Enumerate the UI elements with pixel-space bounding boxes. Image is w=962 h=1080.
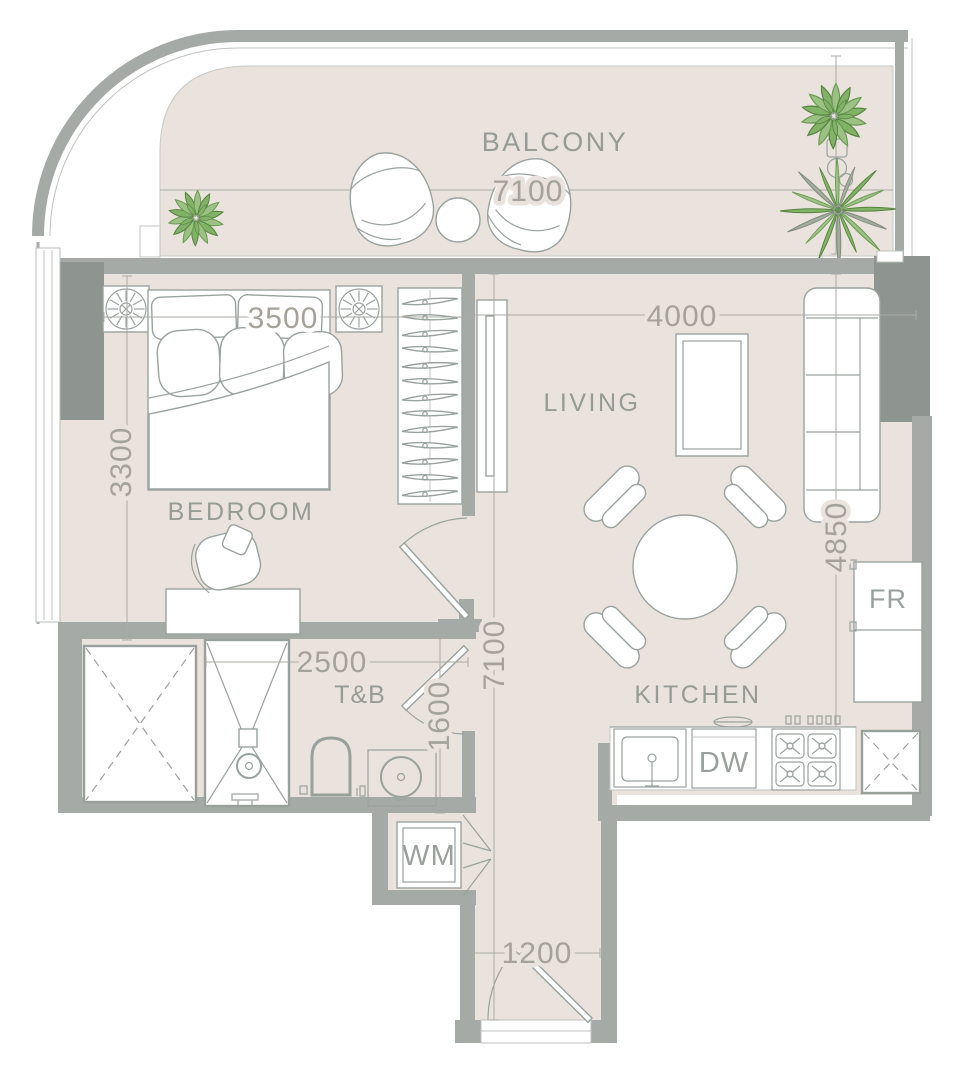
washing-machine-label: WM [402,840,456,872]
floor-plan-page: 7100 3500 3300 4000 4850 7100 2500 1600 … [0,0,962,1080]
dim-tb-width: 2500 [297,646,368,679]
shaft-box [84,646,196,802]
dim-entry-width: 1200 [502,937,573,970]
coffee-table [676,334,748,456]
tb-label: T&B [334,681,386,709]
wardrobe [398,288,462,504]
kitchen-shaft-box [862,731,920,793]
dishwasher-label: DW [699,747,749,779]
tv-console [477,300,507,492]
dim-bedroom-width: 3500 [248,302,319,335]
bedroom-label: BEDROOM [168,498,315,526]
dim-bedroom-length: 3300 [105,427,138,498]
living-label: LIVING [544,389,641,417]
kitchen-label: KITCHEN [634,681,761,709]
dim-living-length: 4850 [820,502,853,573]
dim-living-width: 4000 [647,300,718,333]
fridge-label: FR [869,584,907,614]
dim-hall-length: 7100 [478,620,511,691]
balcony-side-table [436,198,480,242]
dim-tb-length: 1600 [423,681,456,752]
floor-plan-drawing: 7100 3500 3300 4000 4850 7100 2500 1600 … [0,0,962,1080]
ceiling-fan [103,286,149,332]
bedroom-desk [166,589,300,634]
shower [205,640,289,806]
sofa [804,288,880,522]
balcony-label: BALCONY [482,127,629,157]
entry-door-frame [481,1020,591,1043]
fridge [850,560,922,702]
dim-balcony-width: 7100 [493,175,564,208]
ceiling-fan [336,286,382,332]
dining-table [633,515,737,619]
